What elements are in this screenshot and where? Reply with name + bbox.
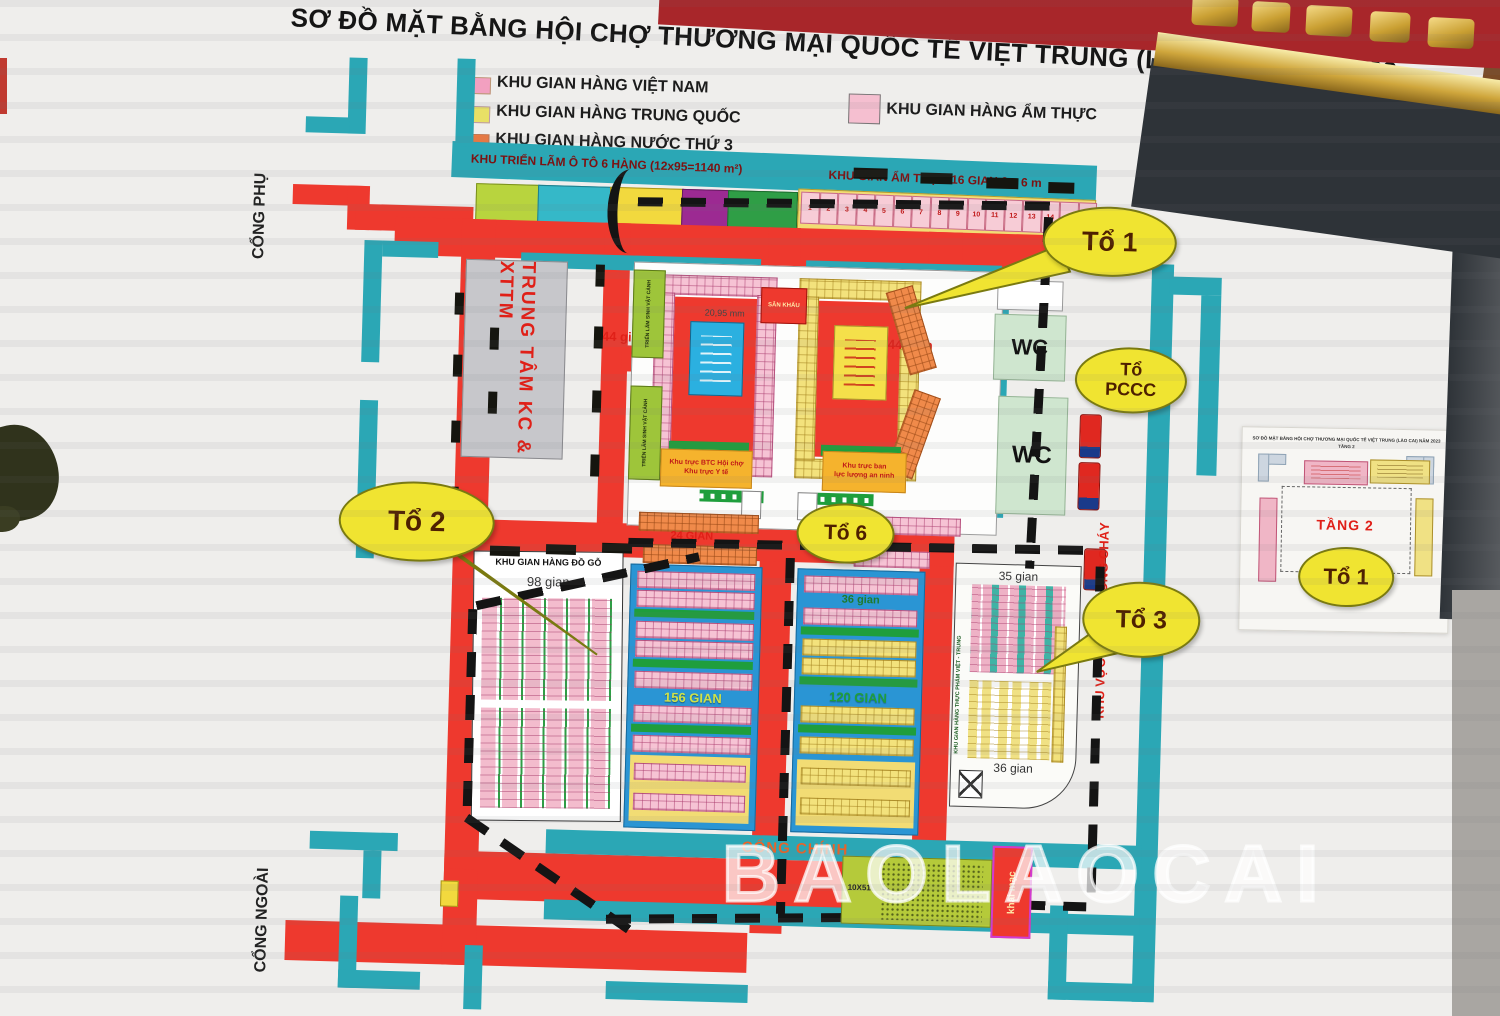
inset-floor-label: TẦNG 2	[1281, 516, 1409, 534]
inset-room-pink-top	[1304, 460, 1368, 485]
banner-letter	[1251, 1, 1291, 33]
bubble-label: Tổ	[1120, 360, 1143, 380]
inset-room-pink-left	[1258, 498, 1277, 582]
bubble-label: Tổ 2	[388, 505, 446, 539]
inset-header2: TẦNG 2	[1242, 442, 1450, 451]
banner-letter	[1191, 0, 1239, 27]
inset-room-yellow-right	[1414, 498, 1433, 576]
inset-floor2-sheet: SƠ ĐỒ MẶT BẰNG HỘI CHỢ THƯƠNG MẠI QUỐC T…	[1238, 426, 1452, 634]
bubble-label: Tổ 1	[1323, 564, 1369, 591]
edge-red-sliver	[0, 58, 7, 114]
wall-corner	[1258, 453, 1269, 481]
bubble-label: Tổ 6	[824, 521, 868, 546]
bubble-label: Tổ 1	[1082, 226, 1138, 259]
bubble-label: Tổ 3	[1115, 605, 1167, 635]
inset-room-yellow-top	[1370, 459, 1430, 484]
banner-letter	[1305, 5, 1353, 37]
watermark: BAOLAOCAI	[722, 828, 1332, 920]
photo-of-site-plan-board: SƠ ĐỒ MẶT BẰNG HỘI CHỢ THƯƠNG MẠI QUỐC T…	[0, 0, 1500, 1016]
banner-letter	[1369, 11, 1411, 43]
bubble-label: PCCC	[1105, 380, 1157, 401]
banner-letter	[1427, 17, 1475, 49]
wall-right-lower	[1452, 590, 1500, 1016]
